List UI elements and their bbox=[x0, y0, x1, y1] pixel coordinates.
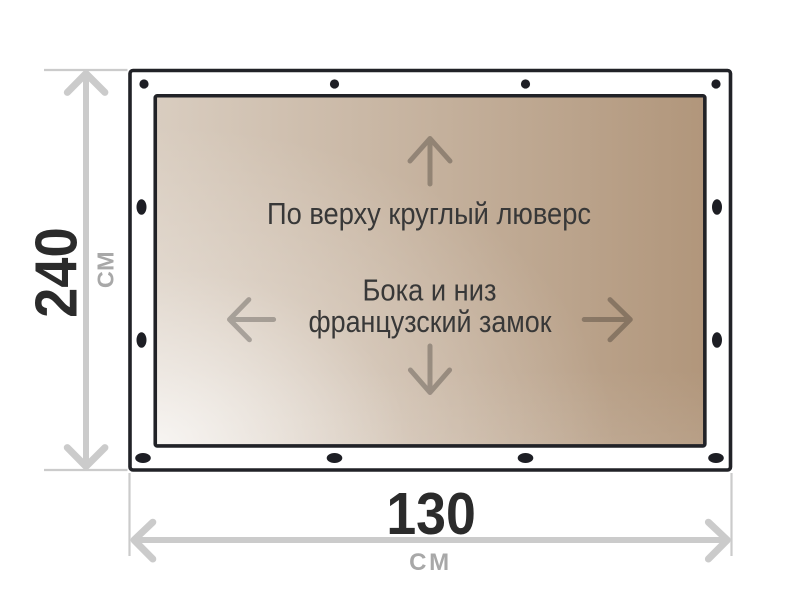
svg-text:СМ: СМ bbox=[409, 549, 452, 576]
svg-text:французский замок: французский замок bbox=[309, 304, 552, 339]
svg-text:130: 130 bbox=[386, 480, 476, 546]
svg-text:СМ: СМ bbox=[92, 251, 118, 288]
svg-text:240: 240 bbox=[24, 227, 90, 318]
svg-text:По верху круглый люверс: По верху круглый люверс bbox=[267, 196, 591, 231]
svg-text:Бока и низ: Бока и низ bbox=[363, 273, 497, 308]
